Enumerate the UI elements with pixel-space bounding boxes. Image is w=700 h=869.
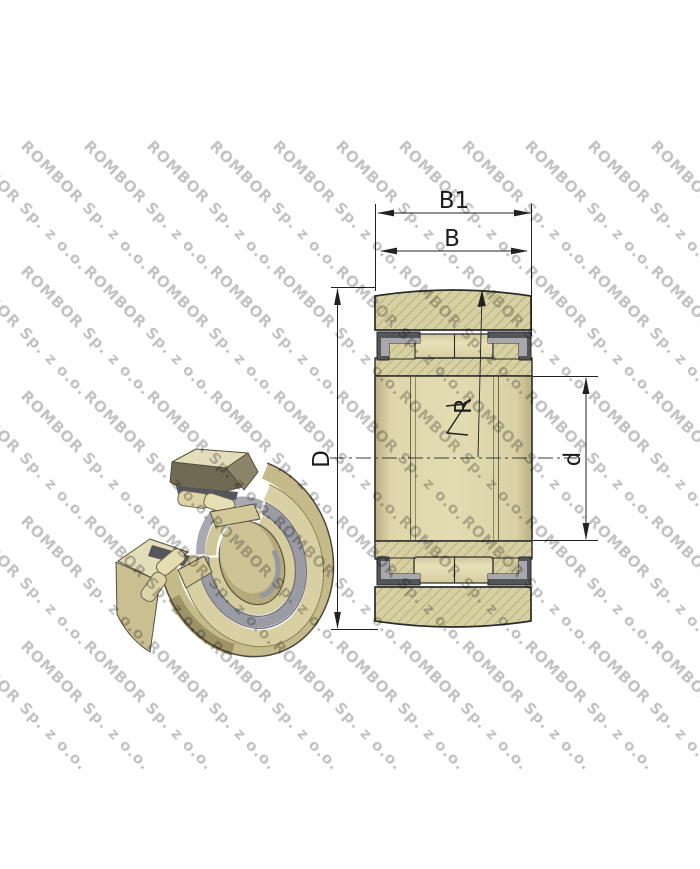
arrowhead bbox=[380, 248, 397, 255]
arrowhead bbox=[514, 210, 531, 217]
inner-ring-flange-bottom-left bbox=[389, 558, 415, 574]
dim-label-b1: B1 bbox=[439, 188, 469, 214]
inner-ring-flange-top-left bbox=[389, 343, 415, 359]
dim-label-bore-diameter: d bbox=[560, 452, 586, 467]
arrowhead bbox=[511, 248, 528, 255]
inner-ring-flange-bottom-right bbox=[493, 558, 519, 574]
arrowhead bbox=[583, 523, 590, 540]
arrowhead bbox=[583, 377, 590, 394]
outer-ring-top-section bbox=[375, 290, 531, 330]
inner-ring-web-bottom bbox=[375, 541, 532, 559]
iso-view bbox=[116, 434, 359, 679]
dim-label-outer-diameter: D bbox=[309, 450, 335, 468]
arrowhead bbox=[334, 288, 341, 305]
inner-ring-web-top bbox=[375, 358, 532, 376]
iso-cut-block-top bbox=[170, 449, 260, 527]
technical-drawing: B1 B D d R bbox=[0, 0, 700, 869]
dim-label-crown-radius: R bbox=[451, 398, 477, 414]
roller-bottom bbox=[414, 557, 493, 583]
bearing-drawing-page: B1 B D d R bbox=[0, 0, 700, 869]
arrowhead bbox=[334, 612, 341, 629]
arrowhead bbox=[377, 210, 394, 217]
dim-label-b: B bbox=[444, 226, 460, 252]
outer-ring-bottom-section bbox=[375, 587, 531, 627]
inner-ring-flange-top-right bbox=[493, 343, 519, 359]
